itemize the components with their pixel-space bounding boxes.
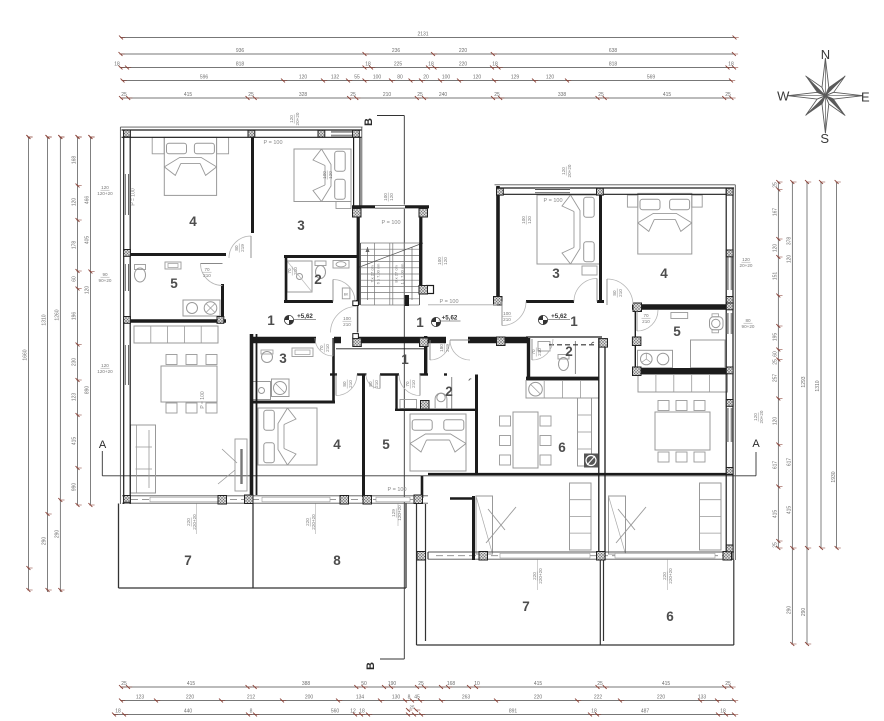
svg-text:487: 487 [641, 709, 650, 715]
svg-text:80: 80 [368, 381, 373, 387]
svg-text:N: N [821, 47, 830, 62]
svg-text:257: 257 [773, 374, 779, 383]
svg-text:220: 220 [186, 518, 191, 526]
svg-text:8 x 27 cm: 8 x 27 cm [394, 265, 399, 283]
svg-text:25: 25 [248, 92, 254, 98]
svg-text:220: 220 [305, 518, 310, 526]
svg-text:120: 120 [742, 257, 750, 262]
svg-text:8: 8 [333, 553, 341, 568]
svg-text:120: 120 [527, 216, 532, 224]
svg-text:E: E [861, 90, 870, 105]
svg-text:18: 18 [492, 62, 498, 68]
svg-text:123: 123 [136, 695, 145, 701]
svg-text:120: 120 [389, 193, 394, 201]
svg-text:210: 210 [618, 289, 623, 297]
svg-text:18: 18 [728, 62, 734, 68]
svg-text:P = 100: P = 100 [387, 487, 406, 493]
svg-text:200: 200 [305, 695, 314, 701]
svg-text:220+20: 220+20 [668, 568, 673, 584]
svg-text:P = 100: P = 100 [439, 299, 458, 305]
svg-text:25: 25 [121, 92, 127, 98]
svg-text:70: 70 [319, 345, 324, 351]
svg-text:70: 70 [405, 381, 410, 387]
svg-text:70: 70 [287, 268, 292, 274]
svg-text:B: B [363, 118, 375, 126]
svg-text:50: 50 [361, 681, 367, 687]
svg-text:25: 25 [597, 681, 603, 687]
svg-text:120: 120 [561, 167, 566, 175]
svg-text:4: 4 [189, 214, 197, 229]
svg-text:25: 25 [598, 92, 604, 98]
svg-text:55: 55 [354, 75, 360, 81]
svg-text:25: 25 [121, 681, 127, 687]
svg-text:290: 290 [42, 537, 48, 546]
svg-text:210: 210 [293, 267, 298, 275]
svg-text:18: 18 [720, 709, 726, 715]
svg-text:100: 100 [437, 257, 442, 265]
svg-text:290: 290 [787, 606, 793, 615]
svg-text:120: 120 [546, 75, 555, 81]
svg-text:466: 466 [85, 196, 91, 205]
svg-text:25: 25 [350, 92, 356, 98]
svg-text:90+20: 90+20 [742, 324, 755, 329]
svg-text:596: 596 [200, 75, 209, 81]
svg-text:415: 415 [72, 437, 78, 446]
svg-text:220: 220 [459, 48, 468, 54]
svg-text:A: A [752, 438, 760, 450]
svg-text:18: 18 [365, 62, 371, 68]
svg-text:120: 120 [299, 75, 308, 81]
svg-text:80: 80 [397, 75, 403, 81]
svg-text:20+20: 20+20 [567, 164, 572, 177]
svg-text:20: 20 [423, 75, 429, 81]
svg-text:60: 60 [773, 351, 779, 357]
svg-text:120: 120 [773, 244, 779, 253]
svg-text:1293: 1293 [801, 376, 807, 387]
svg-text:4: 4 [333, 437, 341, 452]
svg-text:1: 1 [401, 352, 409, 367]
svg-text:225: 225 [394, 62, 403, 68]
svg-text:+5,62: +5,62 [551, 313, 567, 320]
svg-text:1310: 1310 [42, 314, 48, 325]
svg-text:2: 2 [565, 344, 573, 359]
svg-text:80: 80 [342, 381, 347, 387]
svg-text:120: 120 [773, 417, 779, 426]
svg-text:220: 220 [532, 572, 537, 580]
svg-text:134: 134 [356, 695, 365, 701]
svg-text:90: 90 [102, 272, 108, 277]
svg-text:18: 18 [114, 62, 120, 68]
svg-text:415: 415 [662, 681, 671, 687]
svg-text:1930: 1930 [831, 471, 837, 482]
svg-text:6 x 7,00 cm: 6 x 7,00 cm [376, 263, 381, 284]
svg-text:25: 25 [773, 542, 779, 548]
svg-text:2: 2 [445, 384, 453, 399]
svg-text:100: 100 [373, 75, 382, 81]
svg-text:338: 338 [558, 92, 567, 98]
svg-text:90+20: 90+20 [99, 278, 112, 283]
svg-text:120: 120 [328, 171, 333, 179]
svg-text:130: 130 [392, 695, 401, 701]
svg-text:70: 70 [204, 267, 210, 272]
svg-text:569: 569 [647, 75, 656, 81]
svg-text:1: 1 [570, 314, 578, 329]
svg-text:20+20: 20+20 [740, 263, 753, 268]
svg-text:210: 210 [537, 348, 542, 356]
svg-text:220+20: 220+20 [192, 514, 197, 530]
svg-text:415: 415 [787, 506, 793, 515]
svg-text:818: 818 [609, 62, 618, 68]
svg-text:120: 120 [443, 257, 448, 265]
svg-text:18: 18 [115, 709, 121, 715]
svg-text:230: 230 [72, 358, 78, 367]
svg-text:220+20: 220+20 [538, 568, 543, 584]
svg-text:212: 212 [247, 695, 256, 701]
svg-text:120+20: 120+20 [97, 369, 113, 374]
svg-text:B: B [365, 662, 377, 670]
svg-text:290: 290 [55, 530, 61, 539]
svg-text:818: 818 [236, 62, 245, 68]
svg-text:25: 25 [773, 182, 779, 188]
svg-text:328: 328 [299, 92, 308, 98]
svg-text:220: 220 [657, 695, 666, 701]
svg-text:891: 891 [509, 709, 518, 715]
svg-text:240: 240 [439, 92, 448, 98]
svg-text:100: 100 [503, 311, 511, 316]
svg-text:210: 210 [203, 273, 211, 278]
svg-text:3: 3 [552, 266, 560, 281]
svg-text:210: 210 [503, 317, 511, 322]
svg-text:168: 168 [72, 156, 78, 165]
svg-text:120: 120 [72, 198, 78, 207]
svg-text:25: 25 [417, 92, 423, 98]
svg-text:6: 6 [666, 609, 674, 624]
svg-text:100: 100 [322, 171, 327, 179]
svg-text:388: 388 [302, 681, 311, 687]
svg-text:P = 100: P = 100 [381, 220, 400, 226]
svg-text:100: 100 [343, 316, 351, 321]
svg-text:560: 560 [331, 709, 340, 715]
svg-text:220: 220 [662, 572, 667, 580]
svg-text:1260: 1260 [55, 309, 61, 320]
svg-text:220: 220 [186, 695, 195, 701]
svg-text:25: 25 [725, 681, 731, 687]
svg-text:617: 617 [773, 461, 779, 470]
svg-text:129: 129 [391, 509, 396, 517]
svg-text:18: 18 [591, 709, 597, 715]
svg-text:415: 415 [773, 510, 779, 519]
svg-text:P = 100: P = 100 [131, 188, 137, 206]
svg-text:70: 70 [643, 313, 649, 318]
svg-text:80: 80 [234, 245, 239, 251]
svg-text:BK: BK [344, 293, 349, 297]
svg-text:133: 133 [698, 695, 707, 701]
svg-text:129: 129 [511, 75, 520, 81]
svg-text:18: 18 [428, 62, 434, 68]
svg-text:7: 7 [184, 553, 192, 568]
svg-text:120: 120 [787, 255, 793, 264]
svg-text:440: 440 [184, 709, 193, 715]
svg-text:196: 196 [72, 312, 78, 321]
svg-text:100: 100 [383, 193, 388, 201]
svg-text:120+20: 120+20 [397, 505, 402, 521]
svg-text:120: 120 [289, 115, 294, 123]
svg-text:210: 210 [325, 344, 330, 352]
svg-text:178: 178 [72, 241, 78, 250]
svg-text:990: 990 [72, 483, 78, 492]
svg-text:8: 8 [250, 709, 253, 715]
svg-text:1: 1 [267, 313, 275, 328]
svg-text:638: 638 [609, 48, 618, 54]
svg-text:120: 120 [101, 185, 109, 190]
svg-text:290: 290 [801, 608, 807, 617]
svg-text:222: 222 [594, 695, 603, 701]
svg-text:S: S [820, 131, 829, 146]
svg-text:1660: 1660 [23, 349, 29, 360]
svg-text:2131: 2131 [417, 32, 428, 38]
svg-text:12: 12 [350, 709, 356, 715]
svg-text:415: 415 [184, 92, 193, 98]
svg-text:18: 18 [359, 709, 365, 715]
svg-text:P = 100: P = 100 [263, 140, 282, 146]
svg-text:6: 6 [558, 440, 566, 455]
svg-text:P = 100: P = 100 [543, 198, 562, 204]
svg-text:210: 210 [374, 380, 379, 388]
svg-text:220+20: 220+20 [311, 514, 316, 530]
svg-text:210: 210 [343, 322, 351, 327]
svg-text:263: 263 [462, 695, 471, 701]
svg-text:405: 405 [85, 236, 91, 245]
svg-text:190: 190 [388, 681, 397, 687]
svg-text:210: 210 [383, 92, 392, 98]
svg-text:2: 2 [314, 272, 322, 287]
svg-text:80: 80 [745, 318, 751, 323]
svg-text:415: 415 [534, 681, 543, 687]
svg-text:120+20: 120+20 [97, 191, 113, 196]
svg-text:4: 4 [660, 266, 668, 281]
svg-text:P = 100: P = 100 [200, 391, 206, 409]
svg-text:210: 210 [642, 319, 650, 324]
svg-text:25: 25 [773, 359, 779, 365]
svg-text:415: 415 [187, 681, 196, 687]
svg-text:8: 8 [408, 695, 411, 701]
svg-text:5: 5 [382, 437, 390, 452]
svg-text:195: 195 [773, 333, 779, 342]
svg-text:5: 5 [673, 324, 681, 339]
svg-text:3: 3 [297, 218, 305, 233]
svg-text:80: 80 [612, 290, 617, 296]
svg-text:210: 210 [411, 380, 416, 388]
svg-text:617: 617 [787, 458, 793, 467]
svg-text:7 x 27 cm: 7 x 27 cm [370, 265, 375, 283]
svg-text:+5,62: +5,62 [297, 313, 313, 320]
svg-text:120: 120 [753, 413, 758, 421]
svg-text:45: 45 [414, 695, 420, 701]
svg-text:25: 25 [494, 92, 500, 98]
svg-text:132: 132 [331, 75, 340, 81]
svg-text:180: 180 [439, 344, 444, 352]
svg-text:1 x 7,00 cm: 1 x 7,00 cm [400, 263, 405, 284]
svg-text:378: 378 [787, 237, 793, 246]
svg-text:219: 219 [240, 244, 245, 252]
svg-text:210: 210 [348, 380, 353, 388]
svg-text:20+20: 20+20 [295, 112, 300, 125]
svg-text:100: 100 [521, 216, 526, 224]
svg-text:123: 123 [72, 393, 78, 402]
svg-text:236: 236 [392, 48, 401, 54]
svg-text:1310: 1310 [815, 380, 821, 391]
svg-text:25: 25 [725, 92, 731, 98]
svg-text:120: 120 [101, 363, 109, 368]
svg-text:70: 70 [531, 349, 536, 355]
svg-text:25: 25 [418, 681, 424, 687]
svg-text:415: 415 [663, 92, 672, 98]
svg-text:1: 1 [416, 315, 424, 330]
svg-text:120: 120 [473, 75, 482, 81]
svg-text:5: 5 [170, 276, 178, 291]
svg-text:936: 936 [236, 48, 245, 54]
svg-text:219: 219 [445, 344, 450, 352]
svg-text:100: 100 [442, 75, 451, 81]
svg-text:W: W [777, 89, 790, 104]
svg-text:120: 120 [85, 286, 91, 295]
svg-text:20+20: 20+20 [759, 410, 764, 423]
svg-text:3: 3 [279, 351, 287, 366]
svg-text:890: 890 [85, 386, 91, 395]
svg-text:151: 151 [773, 272, 779, 281]
svg-text:A: A [99, 439, 107, 451]
svg-text:60: 60 [72, 276, 78, 282]
svg-text:168: 168 [447, 681, 456, 687]
svg-text:+5,62: +5,62 [442, 315, 458, 322]
svg-text:220: 220 [459, 62, 468, 68]
svg-text:220: 220 [534, 695, 543, 701]
svg-text:7: 7 [522, 599, 530, 614]
svg-text:10: 10 [474, 681, 480, 687]
svg-text:167: 167 [773, 208, 779, 217]
